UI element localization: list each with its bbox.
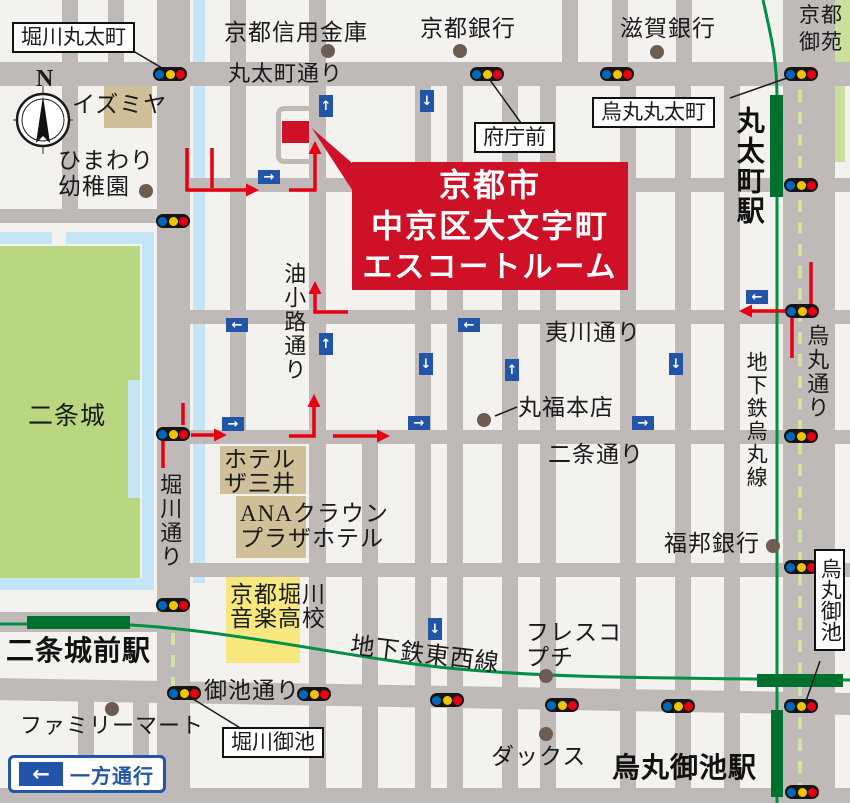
- left-arrow-glyph: ←: [232, 319, 243, 332]
- compass-inner-circle: [22, 99, 64, 141]
- label-shiga-bank: 滋賀銀行: [620, 16, 716, 41]
- traffic-light: [784, 560, 818, 574]
- label-kyoto-bank: 京都銀行: [420, 16, 516, 41]
- signal-yellow-dot: [798, 788, 807, 797]
- street-v13: [675, 62, 691, 788]
- traffic-light: [784, 178, 818, 192]
- signal-blue-dot: [158, 217, 167, 226]
- signal-red-dot: [320, 690, 329, 699]
- destination-line1: 京都市: [439, 165, 541, 206]
- traffic-light: [785, 304, 819, 318]
- one-way-legend-label: 一方通行: [70, 760, 154, 789]
- moat-bottom: [0, 578, 152, 590]
- signal-yellow-dot: [797, 70, 806, 79]
- signal-red-dot: [623, 70, 632, 79]
- destination-box: 京都市 中京区大文字町 エスコートルーム: [352, 162, 628, 290]
- signal-yellow-dot: [169, 430, 178, 439]
- signal-blue-dot: [786, 70, 795, 79]
- moat-top-east: [66, 232, 154, 244]
- poi-dot: [477, 413, 491, 427]
- label-music-school-2: 音楽高校: [230, 606, 326, 631]
- signal-blue-dot: [663, 702, 672, 711]
- poi-dot: [321, 44, 335, 58]
- label-fresco-1: フレスコ: [526, 620, 622, 645]
- destination-line3: エスコートルーム: [362, 247, 617, 288]
- label-izumiya: イズミヤ: [72, 92, 167, 117]
- label-marutamachi-dori: 丸太町通り: [228, 62, 343, 86]
- signal-yellow-dot: [797, 432, 806, 441]
- moat-inner: [128, 380, 140, 498]
- one-way-right-icon: →: [222, 417, 244, 431]
- label-nijo-dori: 二条通り: [548, 442, 644, 467]
- label-aburanokoji-dori: 油小路通り: [281, 262, 305, 382]
- signal-red-dot: [190, 689, 199, 698]
- right-arrow-glyph: →: [228, 418, 239, 431]
- label-kyoto-gyoen-2: 御苑: [799, 31, 843, 54]
- right-arrow-glyph: →: [414, 417, 425, 430]
- signal-blue-dot: [299, 690, 308, 699]
- left-arrow-glyph: ←: [32, 764, 50, 785]
- label-music-school-1: 京都堀川: [230, 582, 326, 607]
- signal-blue-dot: [602, 70, 611, 79]
- one-way-up-icon: ↑: [319, 95, 333, 117]
- signal-yellow-dot: [797, 181, 806, 190]
- traffic-light: [785, 785, 819, 799]
- signal-blue-dot: [786, 432, 795, 441]
- right-arrow-glyph: →: [638, 417, 649, 430]
- one-way-left-icon: ←: [458, 318, 480, 332]
- signal-yellow-dot: [674, 702, 683, 711]
- label-fukuho-bank: 福邦銀行: [664, 531, 760, 556]
- signal-red-dot: [179, 601, 188, 610]
- signal-yellow-dot: [798, 307, 807, 316]
- compass-needle: [36, 96, 50, 143]
- signal-blue-dot: [158, 430, 167, 439]
- signal-blue-dot: [432, 696, 441, 705]
- label-oike-dori: 御池通り: [204, 678, 300, 703]
- street-h2-west: [0, 209, 157, 223]
- one-way-down-icon: ↓: [419, 353, 433, 375]
- traffic-light: [153, 67, 187, 81]
- moat-east: [142, 232, 154, 590]
- traffic-light: [545, 698, 579, 712]
- label-ebisugawa-dori: 夷川通り: [545, 320, 641, 345]
- signal-red-dot: [808, 307, 817, 316]
- signal-blue-dot: [786, 563, 795, 572]
- label-kyoto-gyoen-1: 京都: [799, 4, 843, 27]
- label-horikawa-dori: 堀川通り: [157, 473, 181, 569]
- label-himawari-1: ひまわり: [58, 148, 154, 173]
- label-marutamachi-station: 丸太町駅: [733, 106, 764, 226]
- signal-red-dot: [807, 70, 816, 79]
- left-arrow-glyph: ←: [752, 291, 763, 304]
- down-arrow-glyph: ↓: [671, 358, 682, 371]
- signal-yellow-dot: [169, 601, 178, 610]
- signal-yellow-dot: [797, 563, 806, 572]
- traffic-light: [156, 598, 190, 612]
- label-karasuma-line: 地下鉄烏丸線: [744, 351, 767, 489]
- poi-dot: [453, 44, 467, 58]
- signal-blue-dot: [547, 701, 556, 710]
- traffic-light: [297, 687, 331, 701]
- traffic-light: [470, 67, 504, 81]
- station-bar-karasuma-oike-v: [771, 710, 783, 797]
- signal-red-dot: [568, 701, 577, 710]
- one-way-up-icon: ↑: [505, 359, 519, 381]
- traffic-light: [784, 67, 818, 81]
- right-arrow-glyph: →: [264, 171, 275, 184]
- signal-blue-dot: [472, 70, 481, 79]
- down-arrow-glyph: ↓: [421, 358, 432, 371]
- left-arrow-glyph: ←: [464, 319, 475, 332]
- signal-blue-dot: [786, 702, 795, 711]
- label-nijojomae-station: 二条城前駅: [6, 636, 151, 667]
- signal-red-dot: [807, 181, 816, 190]
- down-arrow-glyph: ↓: [422, 95, 433, 108]
- label-hotel-mitsui-2: ザ三井: [224, 471, 296, 496]
- one-way-left-icon: ←: [746, 290, 768, 304]
- label-dax: ダックス: [491, 744, 586, 769]
- traffic-light: [430, 693, 464, 707]
- one-way-right-icon: →: [408, 416, 430, 430]
- street-v4: [362, 444, 378, 788]
- poi-dot: [650, 45, 664, 59]
- one-way-legend-arrow-icon: ←: [19, 762, 63, 786]
- label-karasuma-dori: 烏丸通り: [804, 324, 828, 420]
- signal-red-dot: [493, 70, 502, 79]
- signal-red-dot: [808, 788, 817, 797]
- label-kyoto-shinkin: 京都信用金庫: [224, 20, 368, 45]
- signal-blue-dot: [169, 689, 178, 698]
- signal-yellow-dot: [443, 696, 452, 705]
- map: 京都市 中京区大文字町 エスコートルーム: [0, 0, 850, 803]
- one-way-down-icon: ↓: [669, 353, 683, 375]
- one-way-right-icon: →: [632, 416, 654, 430]
- label-fresco-2: プチ: [526, 645, 574, 670]
- traffic-light: [600, 67, 634, 81]
- compass-n-label: N: [36, 66, 54, 92]
- traffic-light: [784, 699, 818, 713]
- label-marufuku: 丸福本店: [518, 395, 614, 420]
- label-karasuma-oike-station: 烏丸御池駅: [612, 753, 757, 784]
- one-way-legend: ← 一方通行: [8, 755, 166, 793]
- one-way-down-icon: ↓: [428, 618, 442, 640]
- horikawa-median: [171, 633, 175, 688]
- signal-blue-dot: [158, 601, 167, 610]
- label-himawari-2: 幼稚園: [58, 174, 130, 199]
- traffic-light: [156, 214, 190, 228]
- signal-blue-dot: [787, 788, 796, 797]
- signal-blue-dot: [787, 307, 796, 316]
- signal-yellow-dot: [797, 702, 806, 711]
- signal-red-dot: [807, 702, 816, 711]
- boxed-label-horikawa-oike: 堀川御池: [222, 727, 324, 758]
- signal-yellow-dot: [613, 70, 622, 79]
- boxed-label-karasuma-oike: 烏丸御池: [814, 549, 845, 651]
- signal-red-dot: [807, 432, 816, 441]
- signal-yellow-dot: [180, 689, 189, 698]
- label-ana-1: ANAクラウン: [240, 501, 389, 526]
- traffic-light: [784, 429, 818, 443]
- up-arrow-glyph: ↑: [507, 364, 518, 377]
- one-way-up-icon: ↑: [319, 333, 333, 355]
- one-way-down-icon: ↓: [420, 90, 434, 112]
- traffic-light: [167, 686, 201, 700]
- horikawa-canal: [193, 0, 205, 583]
- signal-blue-dot: [155, 70, 164, 79]
- signal-red-dot: [176, 70, 185, 79]
- signal-yellow-dot: [169, 217, 178, 226]
- signal-yellow-dot: [483, 70, 492, 79]
- signal-red-dot: [453, 696, 462, 705]
- signal-yellow-dot: [166, 70, 175, 79]
- destination-line2: 中京区大文字町: [371, 206, 609, 247]
- poi-dot: [539, 727, 553, 741]
- label-familymart: ファミリーマート: [20, 714, 204, 738]
- traffic-light: [156, 427, 190, 441]
- signal-yellow-dot: [310, 690, 319, 699]
- street-v9: [562, 0, 578, 62]
- poi-dot: [539, 669, 553, 683]
- destination-building: [282, 121, 309, 143]
- boxed-label-karasuma-marutamachi: 烏丸丸太町: [592, 97, 715, 128]
- moat-top-west: [0, 232, 52, 244]
- label-nijo-castle: 二条城: [28, 403, 106, 431]
- signal-yellow-dot: [558, 701, 567, 710]
- poi-dot: [139, 184, 153, 198]
- boxed-label-fuchomae: 府庁前: [474, 122, 555, 153]
- traffic-light: [661, 699, 695, 713]
- signal-red-dot: [179, 217, 188, 226]
- up-arrow-glyph: ↑: [321, 338, 332, 351]
- poi-dot: [766, 539, 780, 553]
- signal-blue-dot: [786, 181, 795, 190]
- karasuma-median-south: [798, 717, 802, 787]
- label-hotel-mitsui-1: ホテル: [224, 447, 296, 472]
- down-arrow-glyph: ↓: [430, 623, 441, 636]
- label-ana-2: プラザホテル: [240, 526, 384, 551]
- signal-red-dot: [684, 702, 693, 711]
- one-way-right-icon: →: [258, 170, 280, 184]
- boxed-label-horikawa-marutamachi: 堀川丸太町: [12, 22, 135, 53]
- signal-red-dot: [179, 430, 188, 439]
- one-way-left-icon: ←: [226, 318, 248, 332]
- up-arrow-glyph: ↑: [321, 100, 332, 113]
